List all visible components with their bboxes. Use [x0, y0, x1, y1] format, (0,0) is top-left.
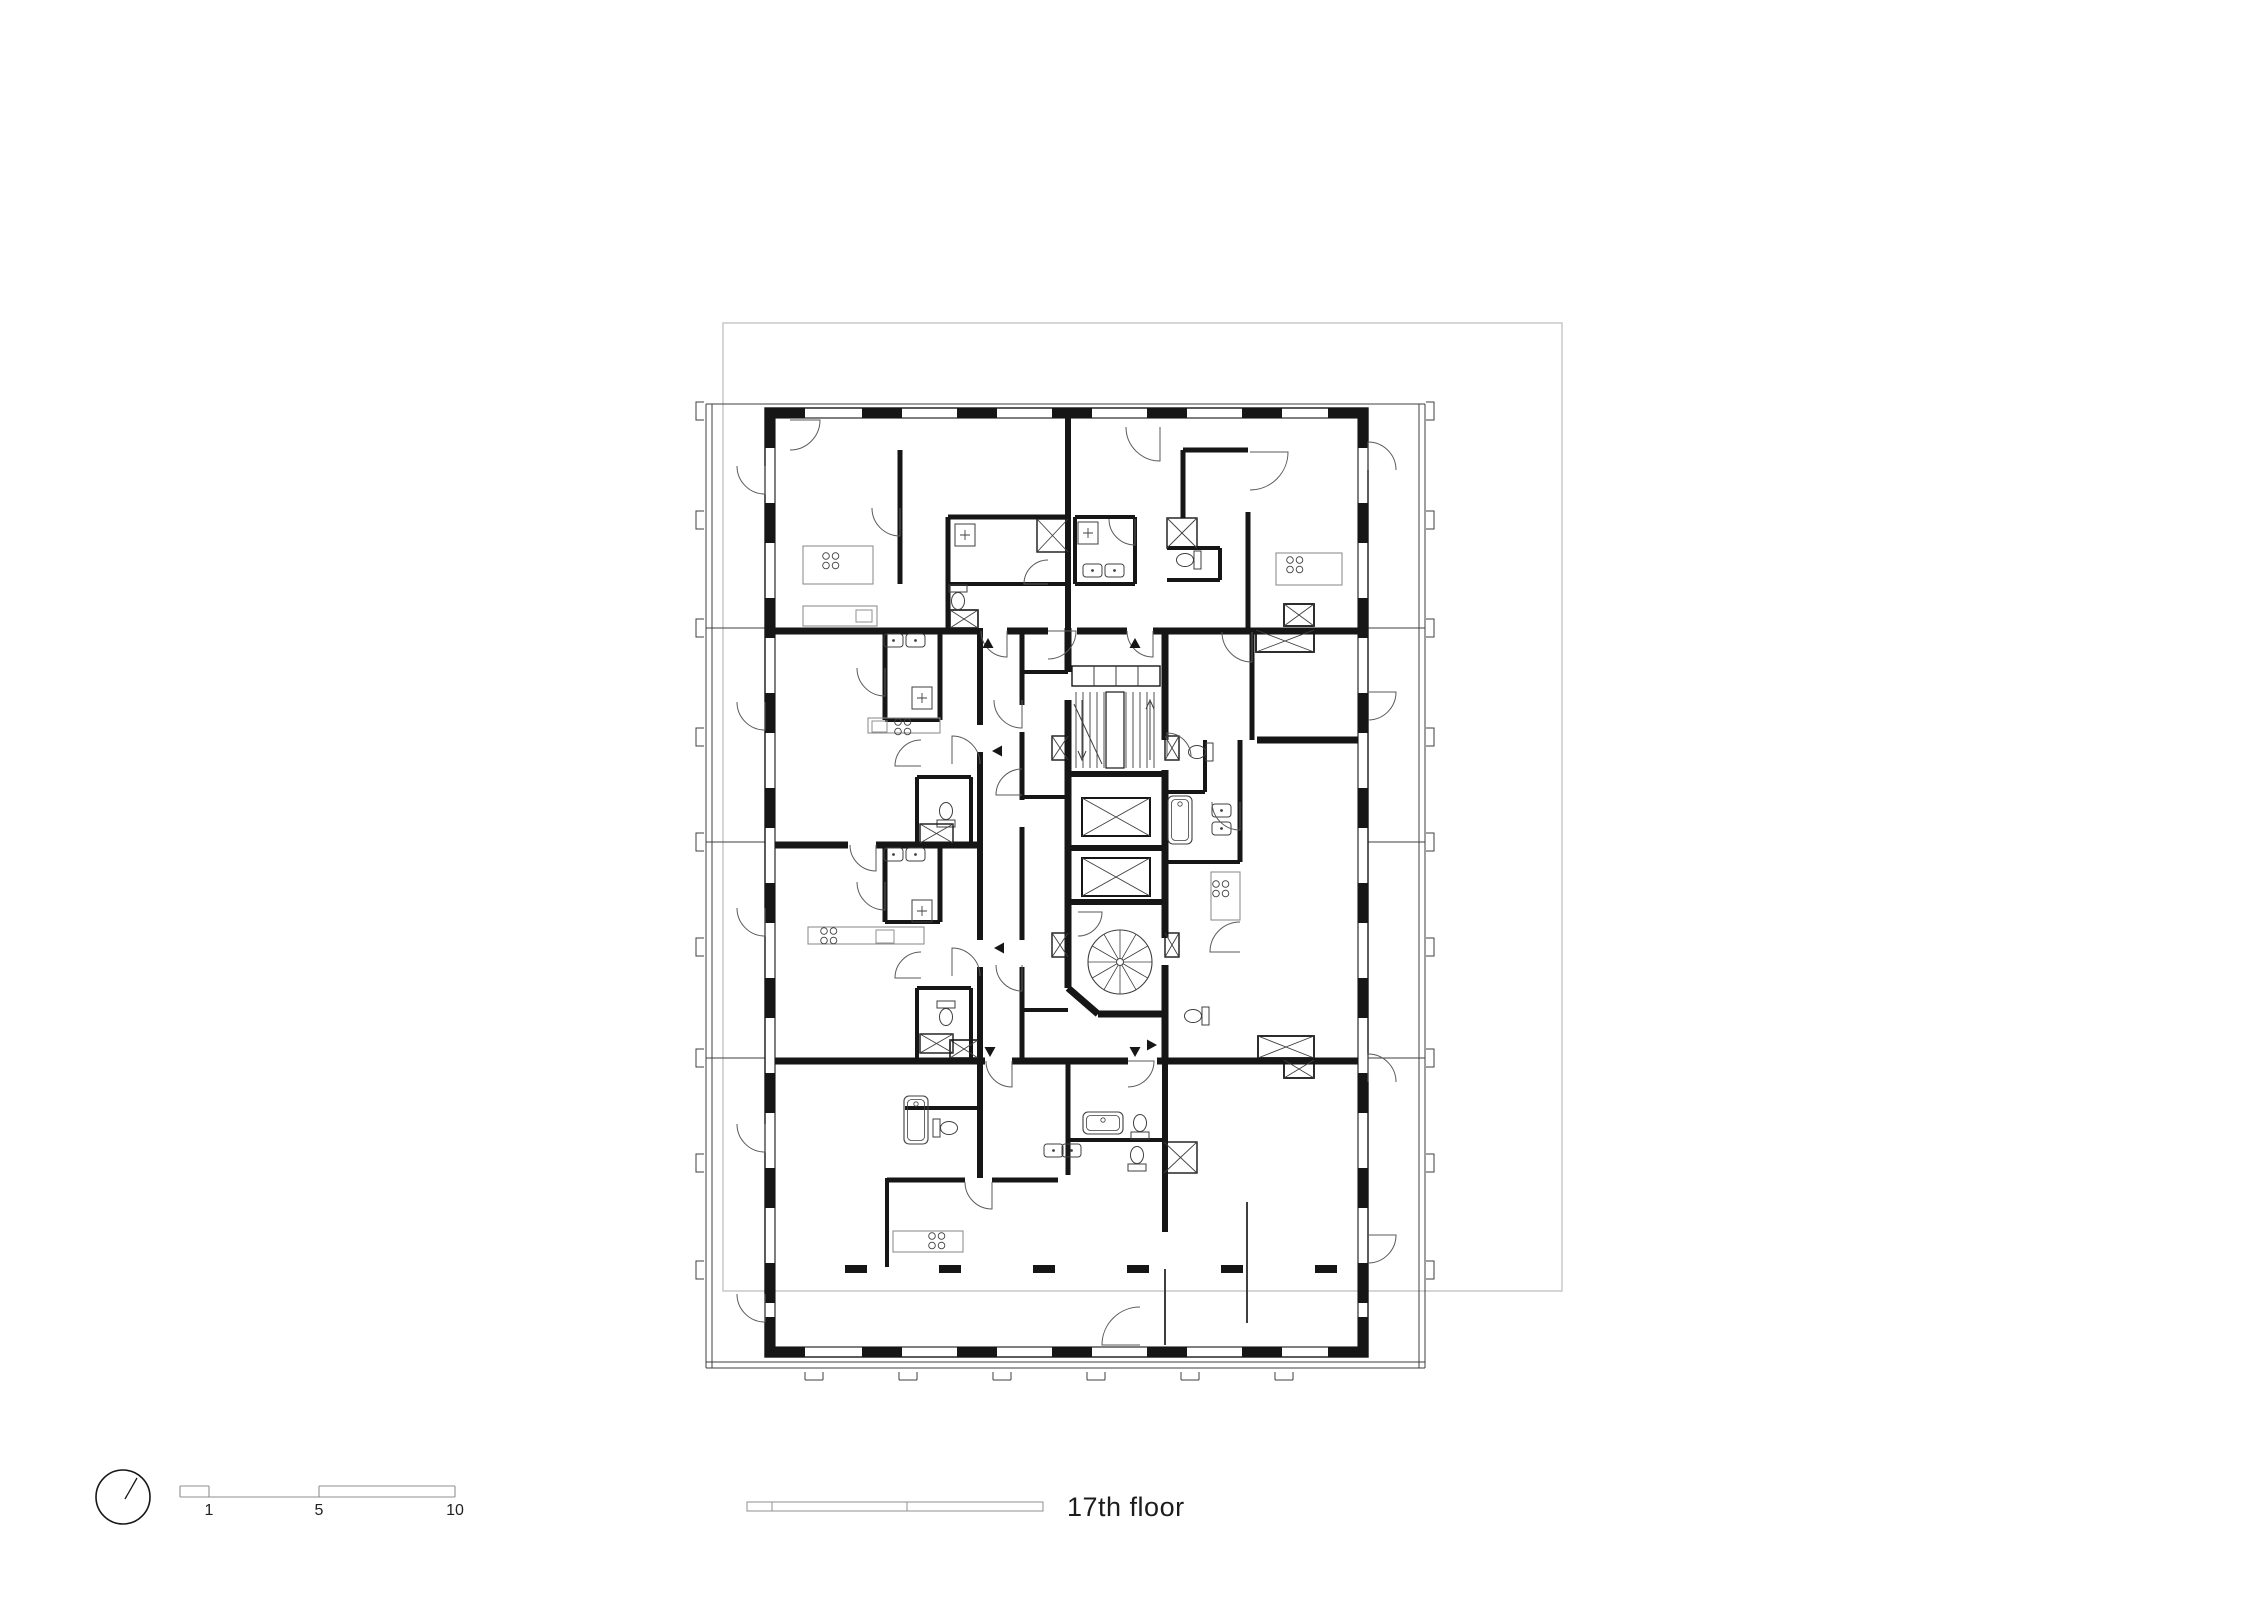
- core: [950, 604, 1314, 1078]
- interior-walls: [775, 418, 1358, 1345]
- floor-label: 17th floor: [1067, 1492, 1185, 1523]
- floor-plan-sheet: 17th floor 1 5 10: [0, 0, 2262, 1600]
- floor-plan-drawing: [0, 0, 2262, 1600]
- scale-label-10: 10: [446, 1502, 464, 1520]
- scale-label-1: 1: [205, 1502, 214, 1520]
- scale-label-5: 5: [315, 1502, 324, 1520]
- ghost-outline: [723, 323, 1562, 1291]
- legend-graphics: [96, 1470, 1043, 1524]
